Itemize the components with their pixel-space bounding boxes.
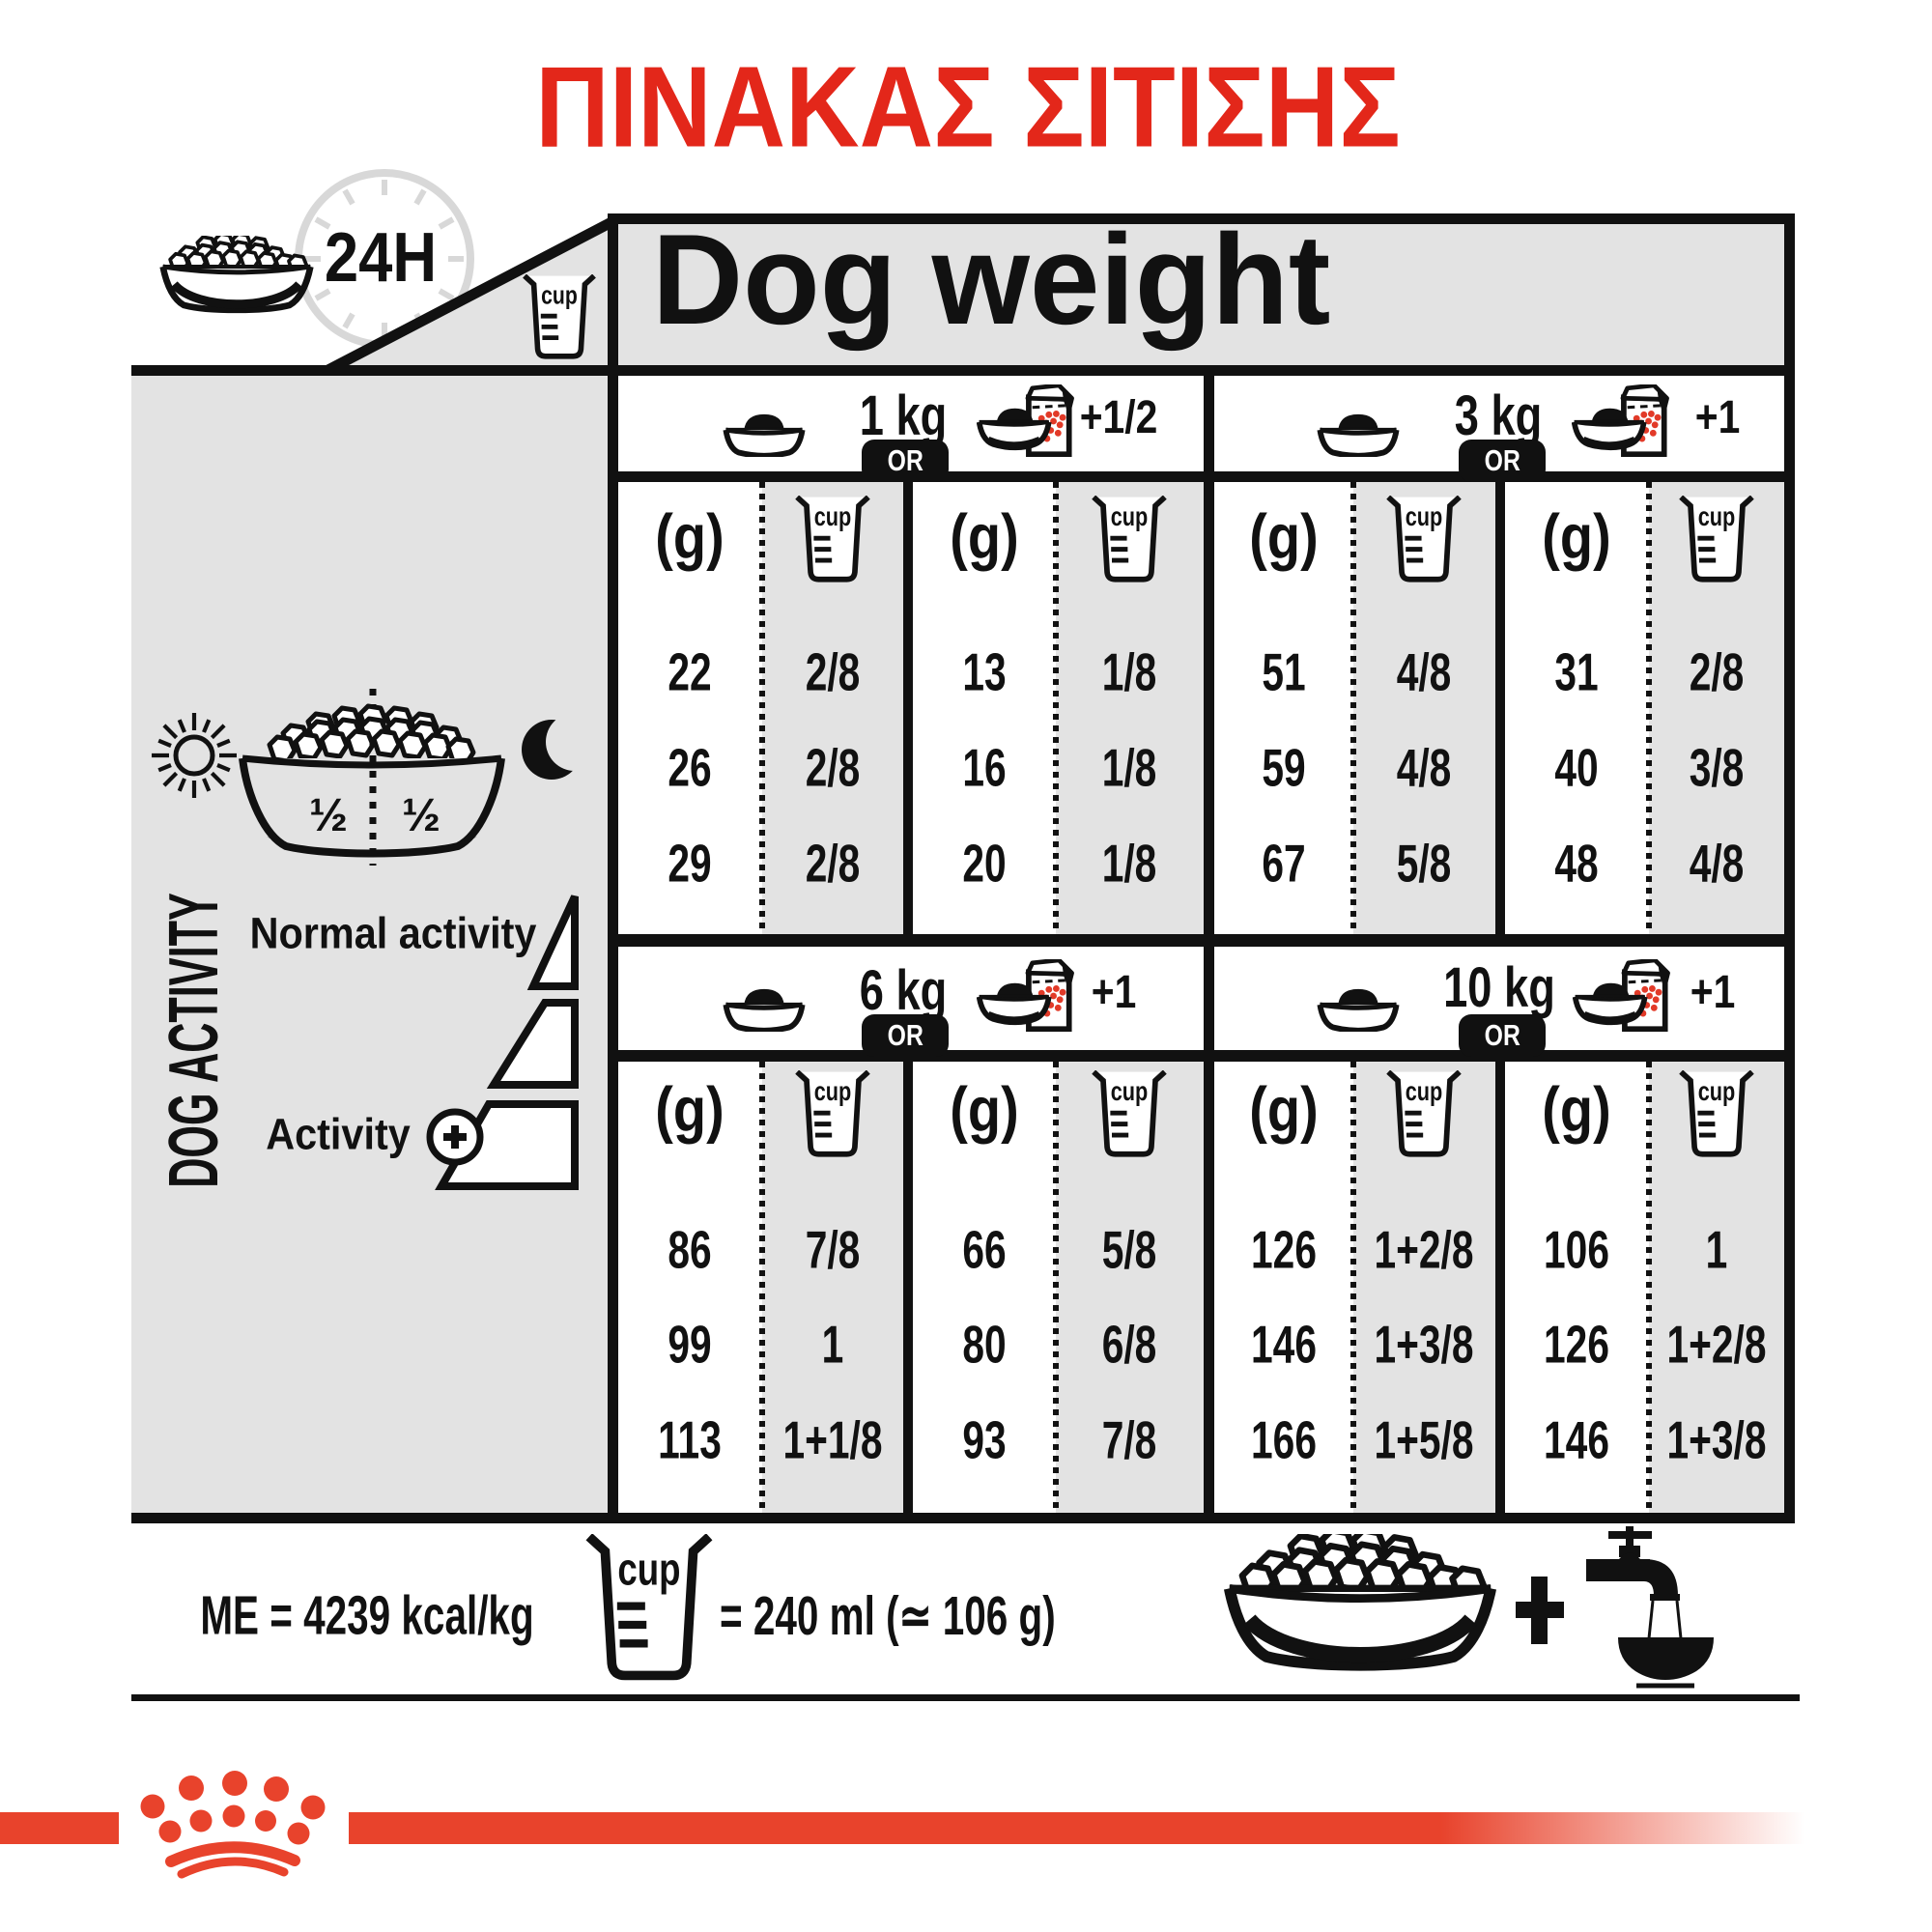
svg-text:½: ½	[309, 790, 348, 841]
svg-text:½: ½	[402, 790, 440, 841]
